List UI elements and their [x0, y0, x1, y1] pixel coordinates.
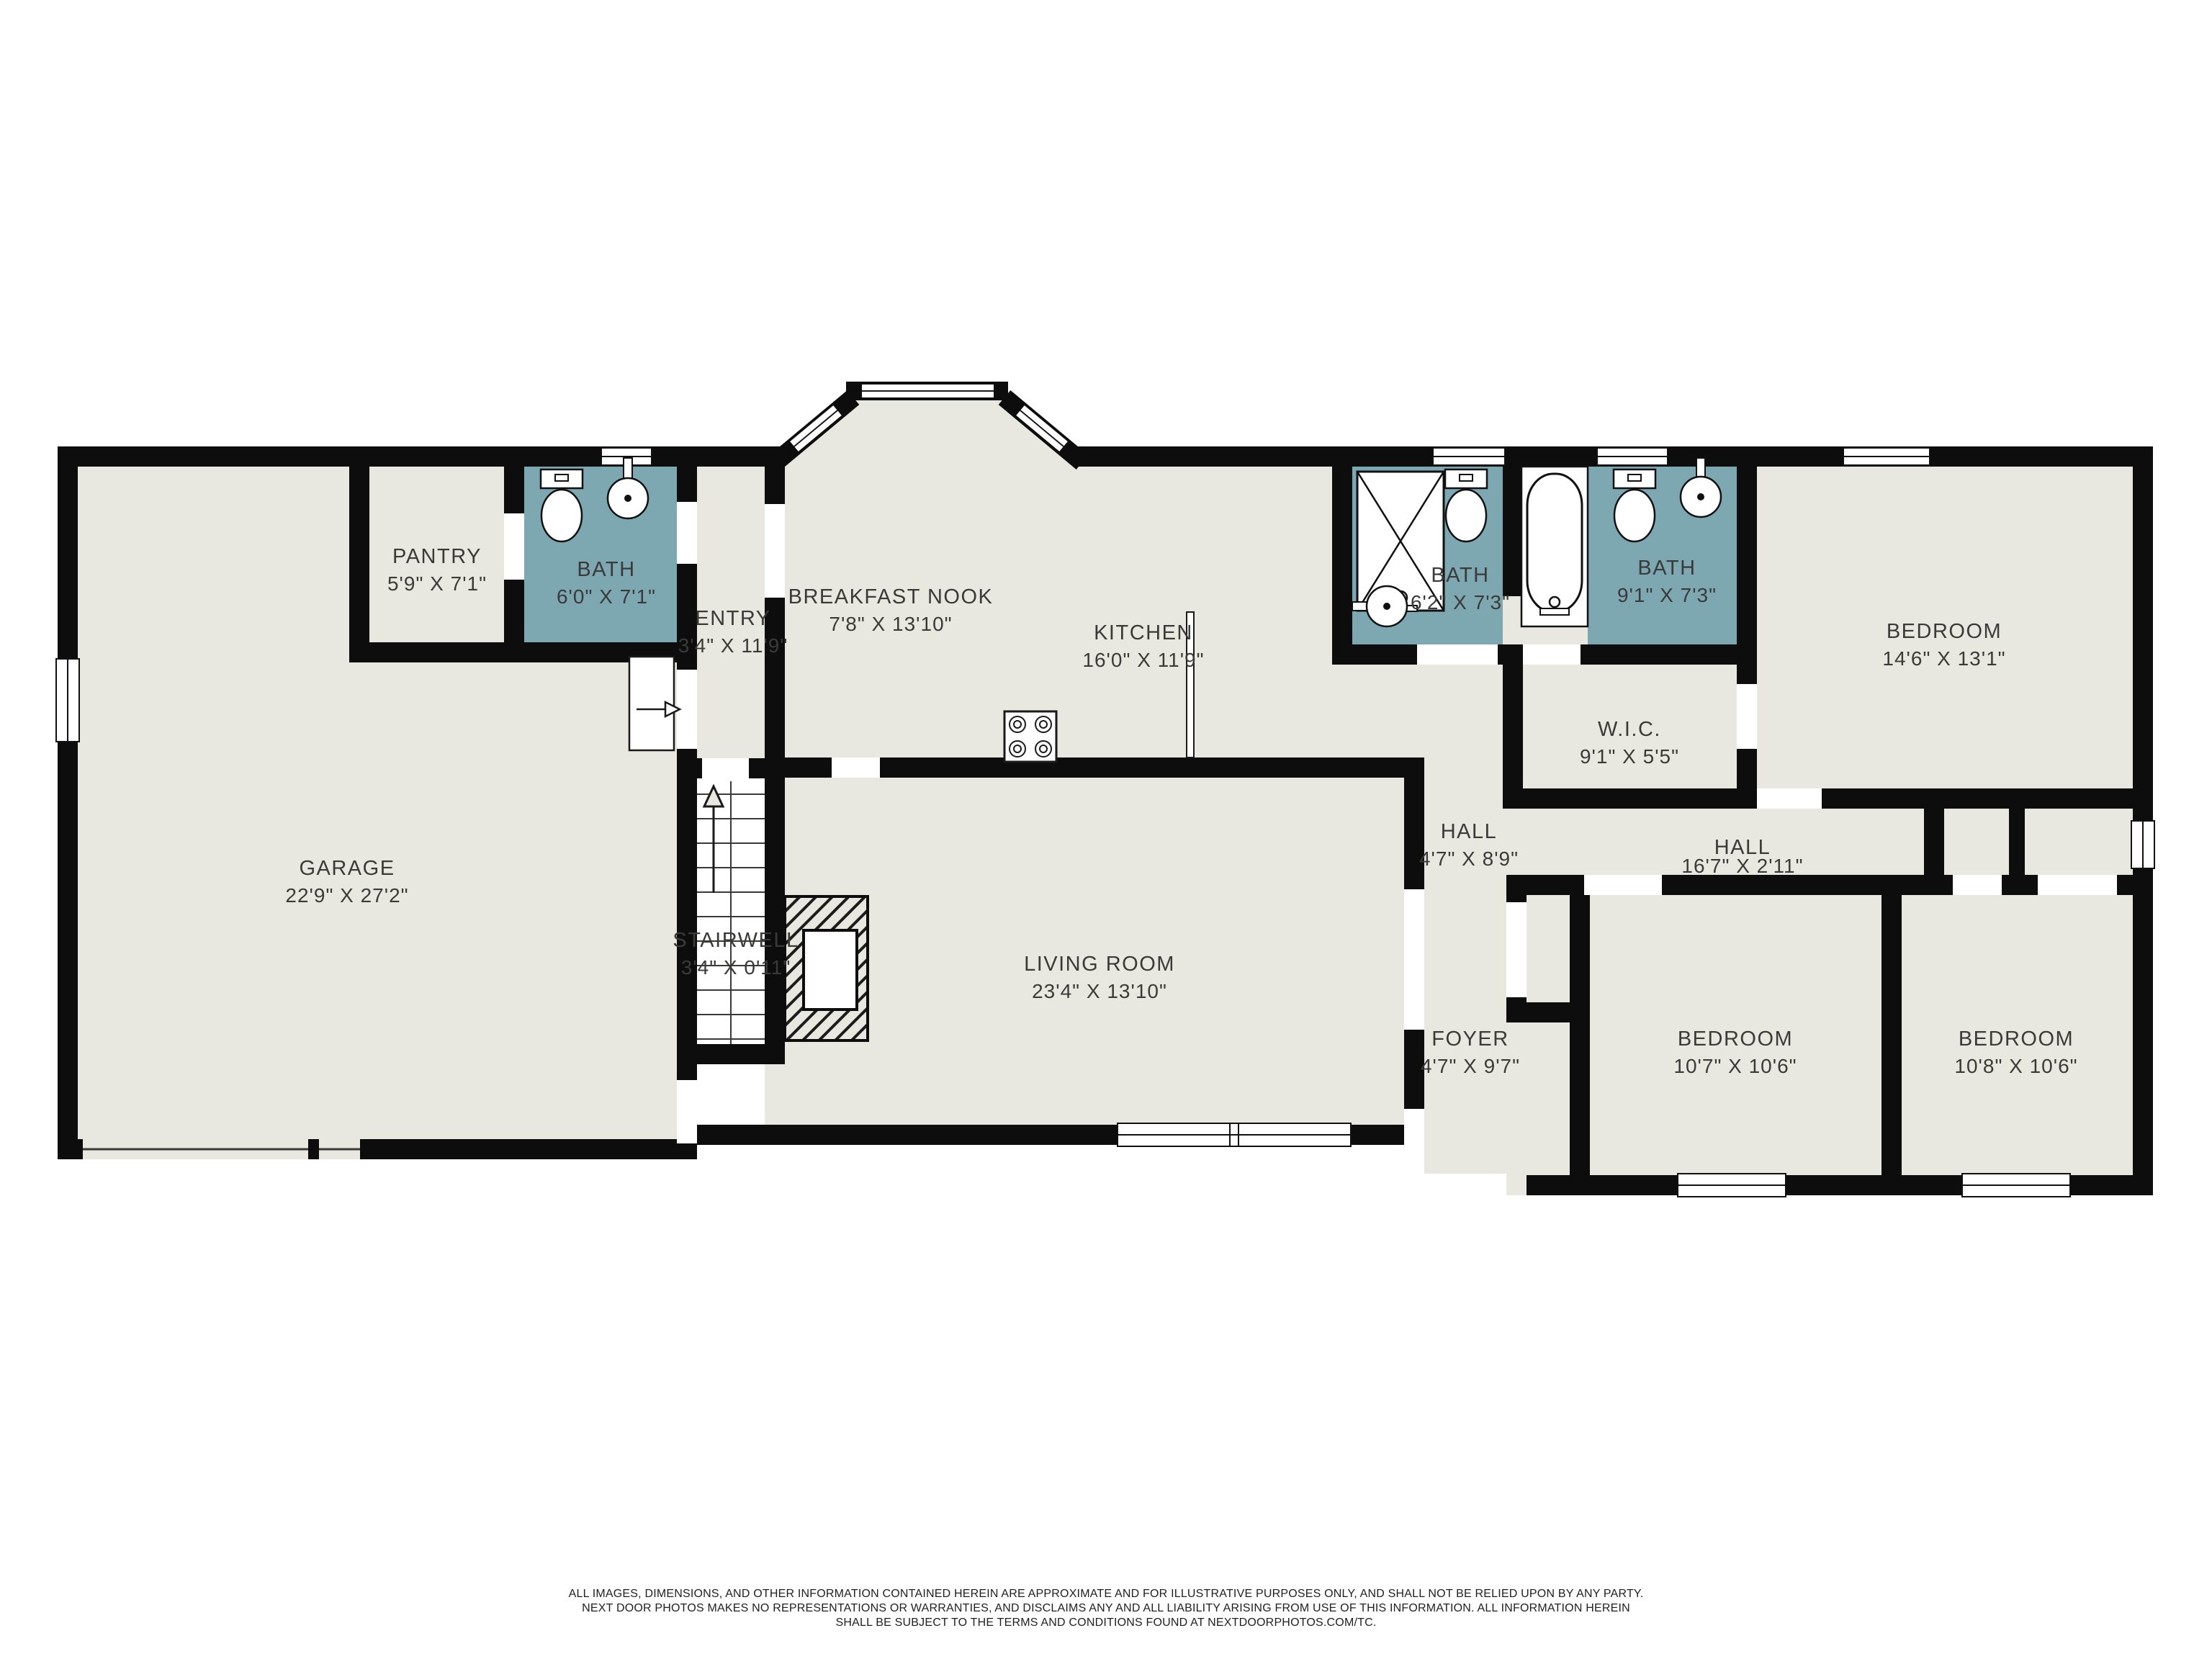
- svg-text:4'7" X 9'7": 4'7" X 9'7": [1421, 1055, 1520, 1077]
- svg-text:GARAGE: GARAGE: [299, 857, 395, 880]
- svg-text:9'1" X 7'3": 9'1" X 7'3": [1617, 584, 1717, 606]
- bedroom-middle-window-icon: [1678, 1174, 1786, 1197]
- svg-text:4'7" X 8'9": 4'7" X 8'9": [1419, 848, 1519, 870]
- svg-text:KITCHEN: KITCHEN: [1094, 621, 1193, 644]
- bath-tub-window-icon: [1597, 448, 1668, 465]
- svg-text:SHALL BE SUBJECT TO THE TERMS: SHALL BE SUBJECT TO THE TERMS AND CONDIT…: [835, 1617, 1376, 1629]
- bedroom-primary-window-icon: [1843, 448, 1930, 465]
- svg-text:ALL IMAGES, DIMENSIONS, AND OT: ALL IMAGES, DIMENSIONS, AND OTHER INFORM…: [569, 1588, 1644, 1600]
- svg-text:7'8" X 13'10": 7'8" X 13'10": [829, 613, 952, 635]
- garage-window-icon: [56, 659, 79, 742]
- svg-text:ENTRY: ENTRY: [695, 607, 770, 630]
- svg-text:BREAKFAST NOOK: BREAKFAST NOOK: [788, 585, 994, 608]
- svg-text:16'7" X 2'11": 16'7" X 2'11": [1681, 855, 1803, 877]
- svg-text:16'0" X 11'9": 16'0" X 11'9": [1082, 649, 1204, 671]
- stairs-up-arrow-icon: [704, 786, 723, 893]
- svg-text:BATH: BATH: [577, 558, 635, 581]
- svg-text:HALL: HALL: [1441, 820, 1498, 843]
- svg-text:6'0" X 7'1": 6'0" X 7'1": [557, 585, 656, 608]
- svg-text:W.I.C.: W.I.C.: [1598, 718, 1661, 741]
- bath-main-floor: [524, 467, 677, 642]
- toilet-icon: [1614, 469, 1655, 541]
- svg-text:10'7" X 10'6": 10'7" X 10'6": [1673, 1055, 1797, 1077]
- svg-text:23'4" X 13'10": 23'4" X 13'10": [1032, 980, 1167, 1002]
- floor-plan-canvas: GARAGE 22'9" X 27'2" PANTRY 5'9" X 7'1" …: [0, 0, 2212, 1659]
- svg-text:FOYER: FOYER: [1431, 1028, 1509, 1051]
- bedroom-right-window-icon: [1962, 1174, 2070, 1197]
- stove-icon: [1004, 711, 1056, 762]
- svg-text:9'1" X 5'5": 9'1" X 5'5": [1580, 745, 1679, 768]
- svg-text:NEXT DOOR PHOTOS MAKES NO REPR: NEXT DOOR PHOTOS MAKES NO REPRESENTATION…: [582, 1602, 1630, 1614]
- stairs-icon: [697, 781, 765, 1044]
- svg-text:STAIRWELL: STAIRWELL: [673, 929, 799, 952]
- svg-text:PANTRY: PANTRY: [392, 545, 482, 568]
- svg-text:14'6" X 13'1": 14'6" X 13'1": [1882, 647, 2005, 670]
- bath-shower-window-icon: [1433, 448, 1505, 465]
- svg-text:3'4" X 0'11": 3'4" X 0'11": [681, 956, 791, 979]
- svg-text:3'4" X 11'9": 3'4" X 11'9": [678, 634, 788, 657]
- svg-text:22'9" X 27'2": 22'9" X 27'2": [285, 884, 408, 907]
- svg-text:BEDROOM: BEDROOM: [1678, 1028, 1793, 1051]
- toilet-icon: [1445, 469, 1487, 541]
- svg-text:6'2" X 7'3": 6'2" X 7'3": [1411, 591, 1510, 613]
- toilet-icon: [541, 469, 583, 541]
- svg-text:BEDROOM: BEDROOM: [1887, 620, 2002, 643]
- disclaimer-text: ALL IMAGES, DIMENSIONS, AND OTHER INFORM…: [569, 1588, 1644, 1629]
- svg-text:BEDROOM: BEDROOM: [1959, 1028, 2074, 1051]
- svg-text:BATH: BATH: [1431, 564, 1489, 587]
- bathtub-icon: [1521, 467, 1588, 626]
- svg-text:5'9" X 7'1": 5'9" X 7'1": [387, 572, 487, 595]
- living-room-window-icon: [1118, 1123, 1351, 1146]
- svg-text:LIVING ROOM: LIVING ROOM: [1024, 953, 1175, 976]
- svg-text:10'8" X 10'6": 10'8" X 10'6": [1954, 1055, 2077, 1077]
- floor-plan-page: { "rooms": [ {"id":"garage","name":"GARA…: [0, 0, 2212, 1659]
- fireplace-icon: [785, 896, 868, 1040]
- svg-text:BATH: BATH: [1637, 557, 1696, 580]
- hall-window-icon: [2131, 821, 2154, 868]
